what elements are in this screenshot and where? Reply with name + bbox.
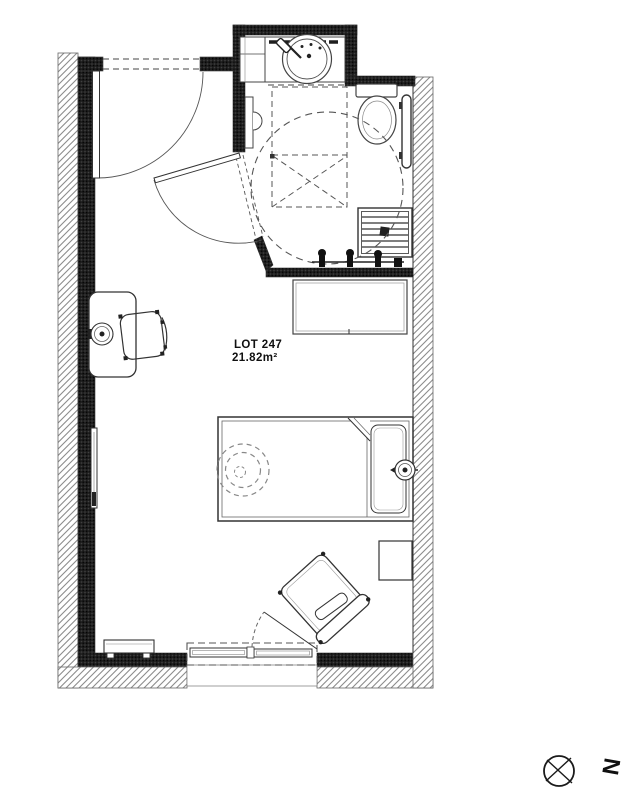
labels: LOT 247 21.82m² [232,339,282,364]
north-letter: N [597,756,624,777]
top-wall-right-stub [200,57,237,71]
sink-symbol [265,35,348,86]
window-symbol [187,612,317,665]
bath-cabinet-symbol [240,37,265,82]
toilet-symbol [356,84,397,144]
bathroom-door-symbol [154,153,263,243]
bottom-wall-left [78,653,187,667]
side-table-symbol [379,541,412,580]
area-label: 21.82m² [232,352,278,364]
armchair-symbol [275,549,373,647]
desk-symbol [88,292,136,377]
bottom-wall-right [317,653,413,667]
right-wall-hatch [413,77,433,688]
floor-plan-drawing: LOT 247 21.82m² N [0,0,624,800]
north-compass-icon: N [544,756,624,786]
bed-symbol [217,417,413,521]
left-wall-hatch [58,53,78,688]
floor-plan-page: LOT 247 21.82m² N [0,0,624,800]
bathroom-fixtures [240,35,412,268]
bathroom-bottom-wall [266,268,413,277]
furniture [88,280,418,658]
bathroom-top-wall [233,25,357,35]
wardrobe-symbol [293,280,407,334]
grab-bar-symbol [399,95,411,168]
towel-rail-symbol [245,97,262,148]
shower-tray-symbol [358,208,412,257]
lot-number-label: LOT 247 [234,339,282,351]
entrance-door-symbol [93,71,204,178]
radiator-symbol [91,428,97,508]
top-wall-left-stub [78,57,103,71]
sink-alcove-right-wall [345,25,357,78]
window-sill-recess [187,665,317,686]
bottom-hatch-left [58,667,187,688]
